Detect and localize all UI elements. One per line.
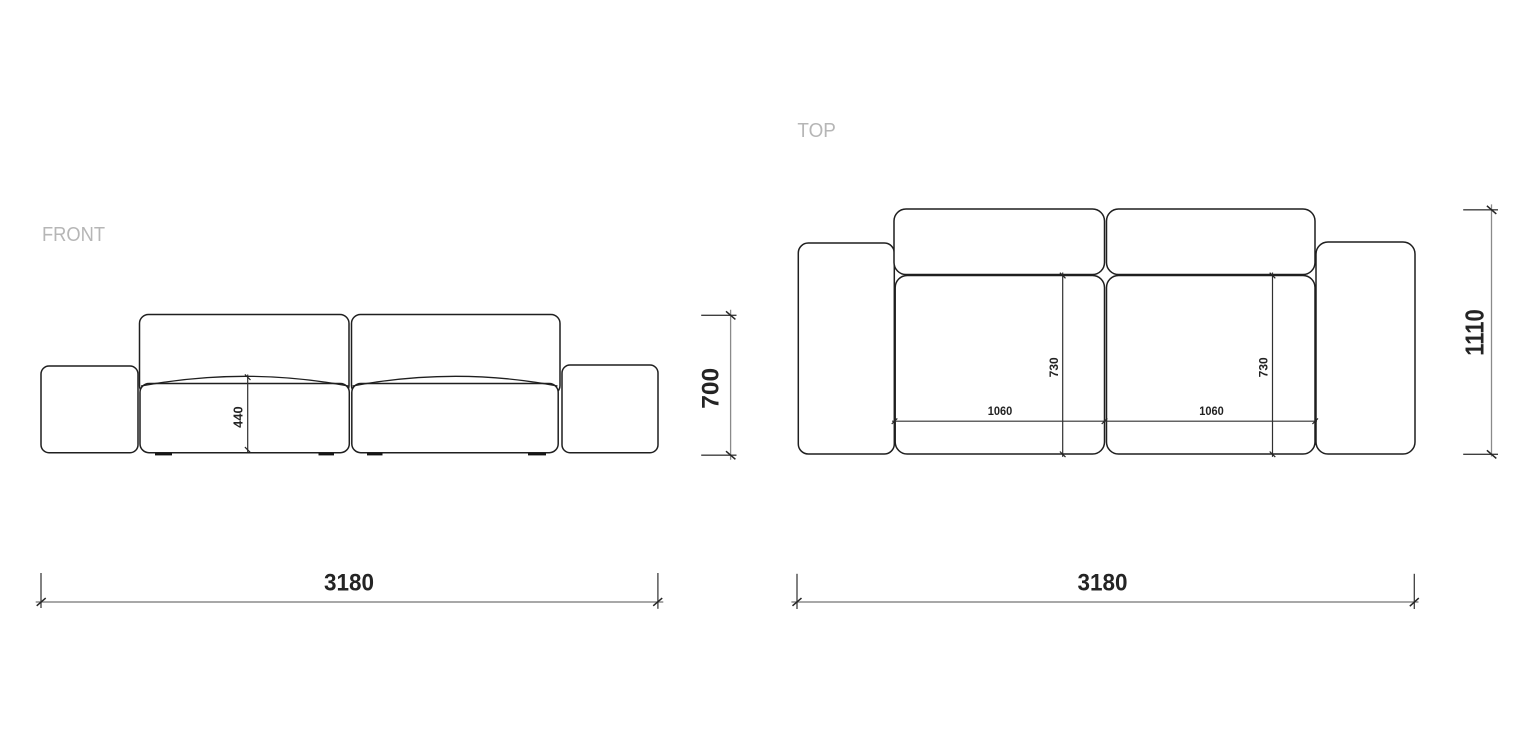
svg-text:700: 700 — [698, 368, 725, 409]
svg-text:730: 730 — [1257, 357, 1271, 377]
svg-text:440: 440 — [231, 406, 246, 428]
svg-text:730: 730 — [1047, 357, 1061, 377]
svg-text:1060: 1060 — [1199, 404, 1224, 418]
svg-text:3180: 3180 — [324, 570, 374, 597]
svg-text:TOP: TOP — [797, 119, 836, 142]
svg-text:3180: 3180 — [1078, 570, 1128, 597]
svg-text:FRONT: FRONT — [42, 223, 105, 246]
svg-text:1060: 1060 — [988, 404, 1013, 418]
svg-text:1110: 1110 — [1462, 309, 1490, 356]
